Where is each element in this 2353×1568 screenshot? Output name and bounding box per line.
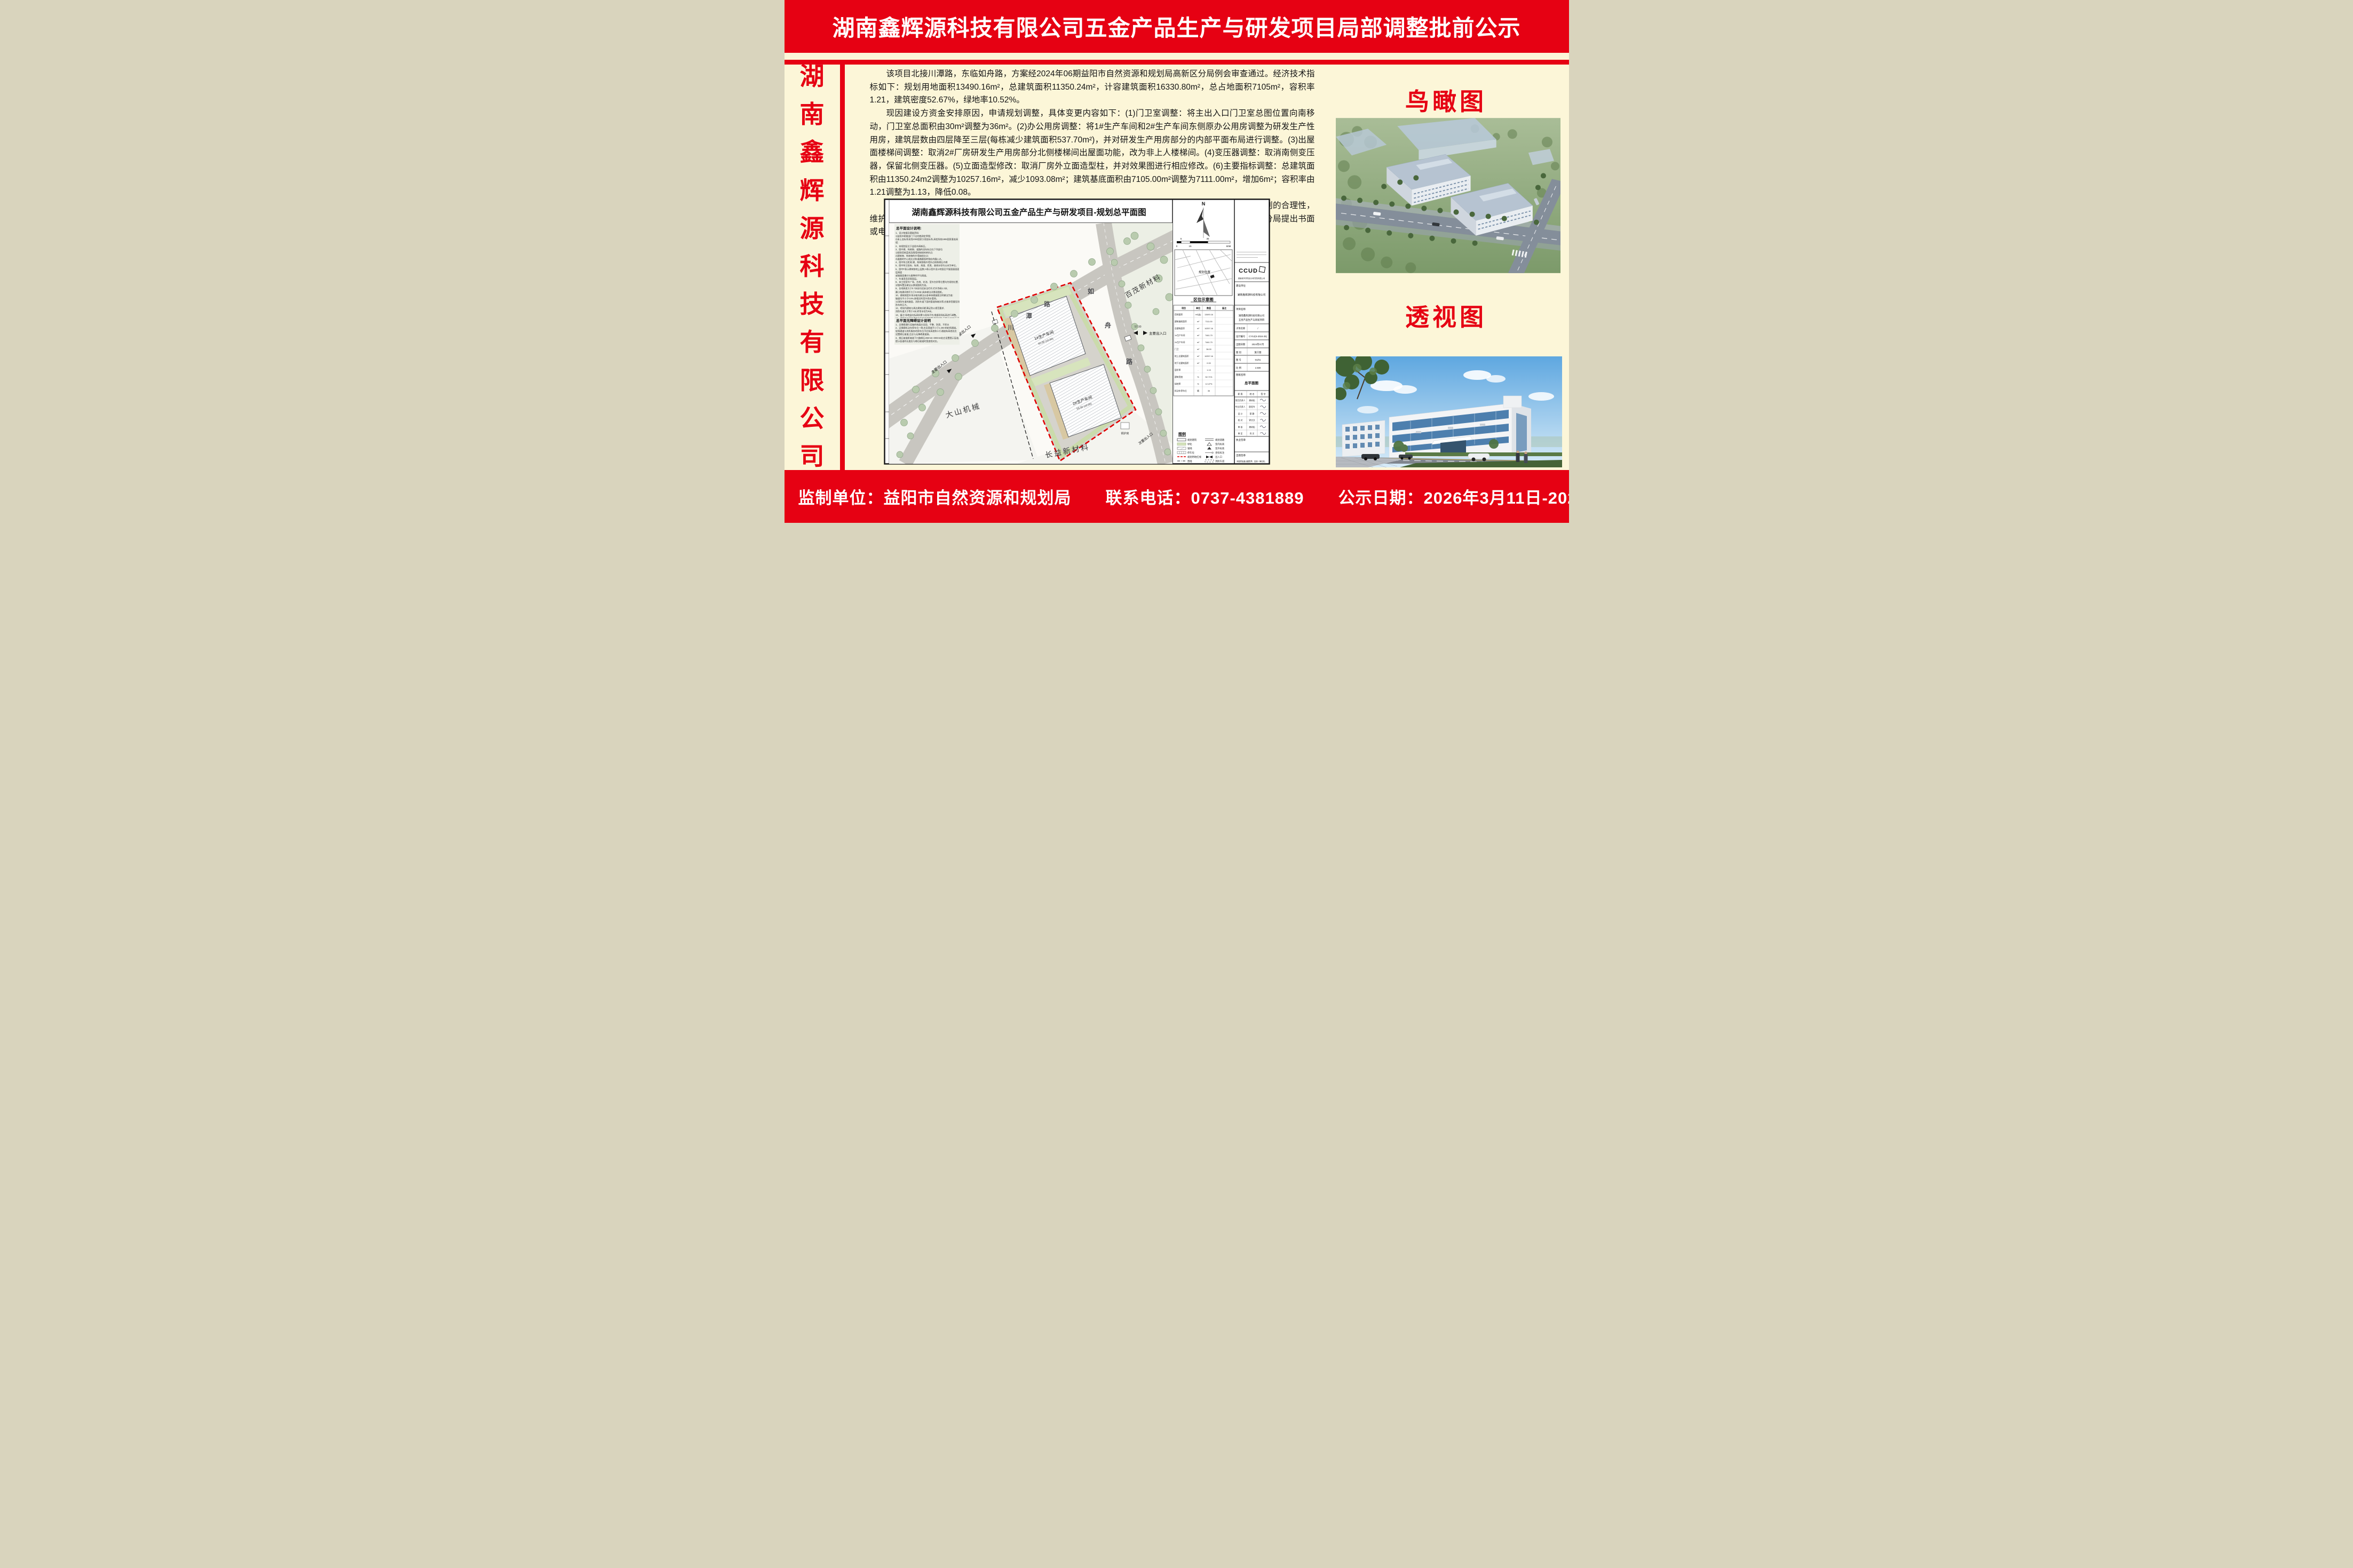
svg-text:出图日期: 出图日期: [1236, 343, 1245, 346]
company-char: 有: [800, 330, 825, 354]
svg-text:路: 路: [1126, 357, 1132, 365]
company-char: 南: [800, 102, 825, 126]
svg-text:消防车道: 消防车道: [1215, 459, 1225, 463]
svg-text:2#生产车间: 2#生产车间: [1175, 341, 1185, 344]
page-title: 湖南鑫辉源科技有限公司五金产品生产与研发项目局部调整批前公示: [832, 10, 1520, 43]
svg-text:门卫: 门卫: [1175, 348, 1179, 351]
svg-text:子项名称: 子项名称: [1236, 327, 1246, 330]
svg-text:规划用地红线: 规划用地红线: [1187, 455, 1201, 459]
public-notice-poster: 湖南鑫辉源科技有限公司五金产品生产与研发项目局部调整批前公示 湖 南 鑫 辉 源…: [785, 0, 1569, 523]
svg-text:五金产品生产与研发项目: 五金产品生产与研发项目: [1238, 318, 1264, 322]
notes2-body: 1、无障碍通行设施的地面应坚固、平整、防滑、不积水 2、无障碍机动车停车位一侧,…: [896, 323, 960, 343]
svg-text:12.47%: 12.47%: [1205, 383, 1213, 385]
paragraph-adjustments: 现因建设方资金安排原因，申请规划调整，具体变更内容如下：(1)门卫室调整：将主出…: [870, 107, 1315, 200]
svg-text:项目: 项目: [1182, 306, 1186, 309]
svg-text:审 定: 审 定: [1238, 432, 1242, 435]
svg-text:建设单位: 建设单位: [1236, 284, 1246, 288]
footer-banner: 监制单位：益阳市自然资源和规划局 联系电话：0737-4381889 公示日期：…: [785, 470, 1569, 523]
svg-text:肖 文: 肖 文: [1249, 432, 1254, 435]
svg-text:图纸名称: 图纸名称: [1236, 373, 1246, 377]
svg-text:围墙: 围墙: [1187, 459, 1192, 463]
elevation-label: 57.90: [1135, 325, 1142, 329]
svg-text:2024年07月: 2024年07月: [1251, 343, 1264, 346]
svg-text:0.00: 0.00: [1207, 362, 1210, 364]
svg-text:01/01: 01/01: [1255, 359, 1261, 361]
svg-text:m²: m²: [1197, 362, 1199, 364]
svg-text:如: 如: [1087, 287, 1094, 295]
design-institute-logo: CCUD: [1239, 268, 1258, 274]
svg-text:规划建筑: 规划建筑: [1187, 438, 1197, 442]
svg-text:建筑基底面积: 建筑基底面积: [1175, 320, 1187, 323]
svg-text:出图签章: 出图签章: [1236, 453, 1246, 457]
company-char: 限: [800, 368, 825, 393]
svg-text:1:500: 1:500: [1255, 367, 1261, 369]
secondary-building: [1342, 420, 1385, 457]
svg-text:钟文文: 钟文文: [1249, 419, 1255, 421]
svg-text:N: N: [1201, 201, 1205, 206]
svg-text:7461.70: 7461.70: [1205, 341, 1213, 344]
svg-text:容积率: 容积率: [1175, 369, 1181, 371]
svg-text:施工图: 施工图: [1254, 351, 1261, 354]
svg-text:52.71%: 52.71%: [1205, 376, 1213, 378]
svg-text:图 别: 图 别: [1236, 351, 1241, 354]
svg-text:m²: m²: [1197, 321, 1199, 323]
svg-text:m²: m²: [1197, 341, 1199, 344]
footer-info: 监制单位：益阳市自然资源和规划局 联系电话：0737-4381889 公示日期：…: [798, 484, 1569, 508]
svg-text:签 字: 签 字: [1261, 392, 1265, 395]
svg-text:潭: 潭: [1026, 312, 1032, 320]
svg-text:35: 35: [1206, 237, 1209, 240]
svg-text:铺地: 铺地: [1187, 447, 1192, 450]
svg-text:1#生产车间: 1#生产车间: [1175, 334, 1185, 337]
svg-text:1.13: 1.13: [1207, 369, 1210, 371]
svg-text:比 例: 比 例: [1236, 366, 1241, 370]
perspective-label: 透视图: [1398, 298, 1494, 332]
perspective-rendering: [1336, 356, 1562, 467]
main-entrance-east: 主要出入口: [1149, 331, 1167, 336]
svg-text:地上总建筑面积: 地上总建筑面积: [1175, 355, 1189, 357]
svg-text:7461.70: 7461.70: [1205, 335, 1213, 337]
svg-text:设计编号: 设计编号: [1236, 335, 1245, 338]
svg-text:室外标高: 室外标高: [1215, 447, 1225, 450]
company-char: 鑫: [800, 140, 825, 164]
svg-text:路: 路: [1044, 300, 1050, 308]
svg-text:15: 15: [1189, 245, 1192, 248]
site-plan-sheet: 湖南鑫辉源科技有限公司五金产品生产与研发项目-规划总平面图 1#生产车间 60.…: [884, 198, 1270, 465]
svg-text:单位: 单位: [1196, 306, 1200, 309]
svg-text:校 对: 校 对: [1238, 419, 1242, 421]
header-banner: 湖南鑫辉源科技有限公司五金产品生产与研发项目局部调整批前公示: [785, 0, 1569, 53]
titleblock-note: 本图须加盖出图签章，否则一律无效。: [1236, 460, 1266, 463]
svg-text:川: 川: [1007, 324, 1014, 331]
svg-text:规划道路: 规划道路: [1215, 438, 1225, 442]
svg-text:设 计: 设 计: [1238, 412, 1242, 415]
company-char: 技: [800, 292, 825, 316]
svg-text:m²(亩): m²(亩): [1195, 313, 1201, 316]
svg-text:备注: 备注: [1222, 306, 1226, 309]
notes-body: 1、设计依据及基础资料: 1)益阳市职能部门下达的勘测定界图; 2)本土坐标系采…: [896, 232, 960, 318]
svg-text:图例: 图例: [1178, 432, 1186, 436]
svg-text:数值: 数值: [1206, 306, 1211, 309]
plan-map: 1#生产车间 60.00 (±0.00) 2#生产车间 59.50 (±0.00…: [884, 223, 1183, 464]
svg-text:m²: m²: [1197, 348, 1199, 351]
location-marker-label: 规划位置: [1198, 270, 1210, 274]
birdseye-rendering: [1336, 118, 1560, 273]
sheet-name: 总平面图: [1245, 380, 1259, 385]
boiler-room: [1121, 423, 1129, 429]
svg-text:用地面积: 用地面积: [1175, 313, 1183, 316]
owner-name: 湖南鑫辉源科技有限公司: [1237, 293, 1265, 297]
svg-text:湖南鑫辉源科技有限公司: 湖南鑫辉源科技有限公司: [1238, 314, 1264, 317]
company-char: 湖: [800, 64, 825, 89]
company-char: 科: [800, 254, 825, 278]
svg-text:辆: 辆: [1197, 389, 1199, 392]
svg-text:m²: m²: [1197, 328, 1199, 330]
svg-text:龚树松: 龚树松: [1249, 426, 1255, 428]
svg-text:姓 名: 姓 名: [1249, 392, 1254, 395]
red-separator-line: [785, 60, 1569, 65]
company-char: 源: [800, 216, 825, 241]
company-char: 辉: [800, 178, 825, 203]
svg-text:龚树松: 龚树松: [1249, 399, 1255, 402]
svg-text:m²: m²: [1197, 335, 1199, 337]
company-char: 司: [800, 444, 825, 468]
svg-text:停车位: 停车位: [1187, 451, 1195, 455]
svg-text:项目负责人: 项目负责人: [1235, 399, 1245, 402]
left-column-divider: [840, 60, 845, 470]
svg-text:职 责: 职 责: [1238, 392, 1242, 395]
svg-text:室内标高: 室内标高: [1215, 442, 1225, 446]
svg-text:7111.00: 7111.00: [1205, 321, 1212, 323]
svg-text:绿化: 绿化: [1187, 442, 1192, 446]
svg-text:m²: m²: [1197, 355, 1199, 357]
svg-text:60M: 60M: [1226, 245, 1231, 248]
company-char: 公: [800, 406, 825, 431]
svg-text:欧阳令: 欧阳令: [1249, 405, 1255, 408]
birdseye-label: 鸟瞰图: [1398, 82, 1494, 117]
svg-text:10257.16: 10257.16: [1205, 355, 1213, 357]
svg-text:专业负责人: 专业负责人: [1235, 405, 1245, 408]
notes2-title: 总平面无障碍设计说明: [896, 318, 931, 323]
svg-text:36.00: 36.00: [1206, 348, 1211, 351]
svg-text:总建筑面积: 总建筑面积: [1175, 327, 1185, 330]
svg-text:地下总建筑面积: 地下总建筑面积: [1175, 362, 1189, 364]
svg-text:建筑密度: 建筑密度: [1175, 376, 1183, 378]
paragraph-indicators: 该项目北接川潭路，东临如舟路，方案经2024年06期益阳市自然资源和规划局高新区…: [870, 68, 1315, 107]
svg-text:CYSJ(S-2024-25): CYSJ(S-2024-25): [1249, 335, 1267, 338]
svg-text:绿地率: 绿地率: [1175, 383, 1181, 385]
svg-text:出入口: 出入口: [1215, 455, 1222, 459]
svg-text:舟: 舟: [1104, 321, 1111, 329]
svg-text:35: 35: [1207, 390, 1209, 392]
plan-title: 湖南鑫辉源科技有限公司五金产品生产与研发项目-规划总平面图: [912, 207, 1146, 217]
svg-text:审 核: 审 核: [1238, 426, 1242, 428]
location-map: 规划位置 区位示意图: [1175, 250, 1232, 302]
svg-text:蔡 静: 蔡 静: [1249, 412, 1254, 415]
svg-text:13490.16: 13490.16: [1205, 314, 1213, 316]
boiler-label: 锅炉房: [1121, 432, 1129, 435]
svg-text:机动车停车位: 机动车停车位: [1175, 389, 1187, 392]
company-name-vertical: 湖 南 鑫 辉 源 科 技 有 限 公 司: [785, 64, 840, 468]
svg-text:项目名称: 项目名称: [1236, 307, 1246, 311]
location-map-title: 区位示意图: [1193, 297, 1214, 302]
svg-text:执业签章: 执业签章: [1236, 438, 1246, 442]
svg-text:10257.16: 10257.16: [1205, 328, 1213, 330]
svg-text:坐标标注: 坐标标注: [1215, 451, 1225, 455]
site-plan-drawing: 湖南鑫辉源科技有限公司五金产品生产与研发项目-规划总平面图 1#生产车间 60.…: [884, 198, 1270, 465]
notes-title: 总平面设计说明:: [896, 226, 922, 230]
design-institute-name: 湖南城市学院设计研究院有限公司: [1238, 277, 1265, 280]
